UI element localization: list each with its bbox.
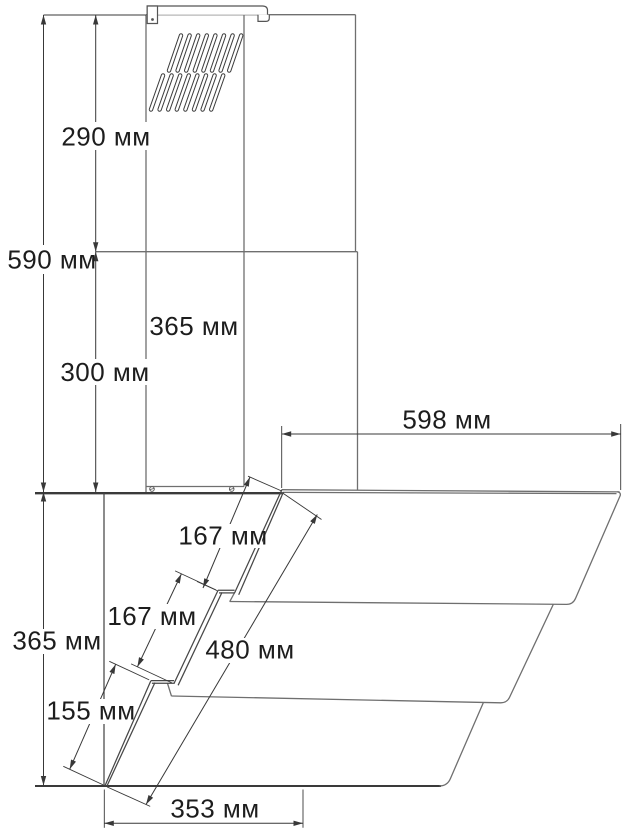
dimension-label-body-height: 365 мм <box>12 626 101 656</box>
extension-155-top <box>109 661 149 680</box>
dimension-label-glass-length: 480 мм <box>205 635 294 665</box>
extension-167top-top <box>248 476 282 491</box>
dimension-label-glass-lower: 155 мм <box>46 696 135 726</box>
screw-icon <box>229 487 234 492</box>
dimension-label-glass-middle: 167 мм <box>107 601 196 631</box>
cap-right-tab <box>258 15 269 22</box>
dimension-label-bottom-depth: 353 мм <box>170 794 259 824</box>
chimney-duct <box>96 15 358 493</box>
screw-icon <box>150 487 155 492</box>
panel-top-edge-outer <box>282 490 620 492</box>
range-hood-dimension-drawing: 290 мм 590 мм 365 мм 300 мм 598 мм 167 м… <box>0 0 630 832</box>
technical-drawing-page: 290 мм 590 мм 365 мм 300 мм 598 мм 167 м… <box>0 0 630 832</box>
dimension-label-chimney-width: 365 мм <box>149 311 238 341</box>
extension-167top-bottom <box>197 582 218 592</box>
mounting-screws <box>150 487 234 492</box>
dimension-label-glass-upper: 167 мм <box>178 521 267 551</box>
dimension-label-chimney-upper: 290 мм <box>61 122 150 152</box>
extension-480-bottom <box>107 787 150 807</box>
dimension-label-chimney-lower: 300 мм <box>60 357 149 387</box>
vent-grille <box>151 36 241 110</box>
panel-1-outline <box>230 492 621 605</box>
panel-3-outline <box>440 703 484 786</box>
extension-480-top <box>282 493 322 520</box>
cap-screw-dot <box>151 18 154 21</box>
panel-top-edge-inner <box>283 492 617 493</box>
panel-1-corner-stub <box>230 593 235 602</box>
dimension-label-top-depth: 598 мм <box>402 405 491 435</box>
panel-2-corner-stub <box>167 683 171 696</box>
dimension-label-chimney-total: 590 мм <box>7 245 96 275</box>
dimension-labels: 290 мм 590 мм 365 мм 300 мм 598 мм 167 м… <box>7 122 491 824</box>
cap-bar <box>147 6 267 15</box>
